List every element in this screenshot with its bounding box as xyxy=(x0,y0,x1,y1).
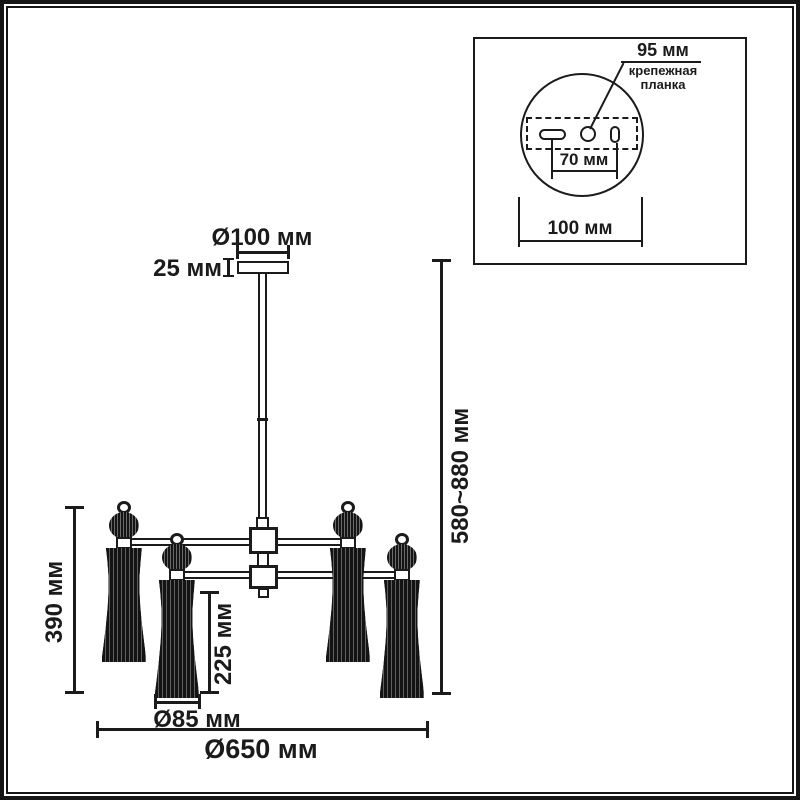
dim-canopy-height-ibeam xyxy=(223,258,234,277)
technical-drawing-chandelier: Ø100 мм 25 мм 580~880 мм 390 мм 225 мм Ø… xyxy=(0,0,800,800)
rod-joint xyxy=(257,418,268,421)
inset-plate-name-line1: крепежная xyxy=(629,63,697,78)
hub-nub xyxy=(258,588,269,598)
lamp3-shade xyxy=(326,548,370,662)
dim-canopy-diameter-tick-right xyxy=(287,245,290,259)
lamp4-sphere xyxy=(387,544,417,571)
inset-plate-length-label: 95 мм xyxy=(618,40,708,61)
ceiling-canopy xyxy=(237,261,289,274)
dim-overall-diameter-line xyxy=(97,728,428,731)
inset-dim-100-line xyxy=(518,240,643,242)
inset-slot-small xyxy=(610,126,620,143)
dim-overall-height-line xyxy=(440,261,443,694)
lower-arm xyxy=(177,571,403,579)
lamp4-shade xyxy=(380,580,424,698)
dim-lamp-height-label: 390 мм xyxy=(41,552,69,652)
lamp2-neck xyxy=(169,569,185,581)
lamp2-sphere xyxy=(162,544,192,571)
inset-plate-name-label: крепежная планка xyxy=(616,64,710,93)
lamp3-neck xyxy=(340,537,356,549)
dim-lamp-height-line xyxy=(73,507,76,693)
lower-hub xyxy=(249,565,278,589)
dim-overall-diameter-tick-left xyxy=(96,721,99,738)
down-rod xyxy=(258,272,267,518)
lamp3-sphere xyxy=(333,512,363,539)
dim-overall-height-tick-top xyxy=(432,259,451,262)
upper-hub xyxy=(249,527,278,554)
dim-overall-height-label: 580~880 мм xyxy=(447,401,475,551)
inset-plate-name-line2: планка xyxy=(641,77,686,92)
inset-dim-100-label: 100 мм xyxy=(520,218,640,240)
dim-lamp-height-tick-top xyxy=(65,506,84,509)
inset-dim-70-label: 70 мм xyxy=(549,150,619,170)
dim-canopy-height-label: 25 мм xyxy=(116,255,222,283)
lamp1-sphere xyxy=(109,512,139,539)
lamp1-neck xyxy=(116,537,132,549)
dim-canopy-diameter-label: Ø100 мм xyxy=(192,224,332,252)
dim-canopy-diameter-tick-left xyxy=(236,245,239,259)
dim-overall-diameter-label: Ø650 мм xyxy=(181,734,341,765)
lamp4-neck xyxy=(394,569,410,581)
inset-dim-70-line xyxy=(551,170,618,172)
dim-shade-height-label: 225 мм xyxy=(210,594,238,694)
dim-lamp-height-tick-bottom xyxy=(65,691,84,694)
dim-canopy-diameter-line xyxy=(237,251,289,254)
lamp2-shade xyxy=(155,580,199,698)
dim-shade-diameter-line xyxy=(155,701,201,704)
upper-arm xyxy=(124,538,348,546)
dim-canopy-height-ibeam-stem xyxy=(227,260,230,275)
dim-overall-height-tick-bottom xyxy=(432,692,451,695)
lamp1-shade xyxy=(102,548,146,662)
inset-slot-oval xyxy=(539,129,566,140)
dim-overall-diameter-tick-right xyxy=(426,721,429,738)
